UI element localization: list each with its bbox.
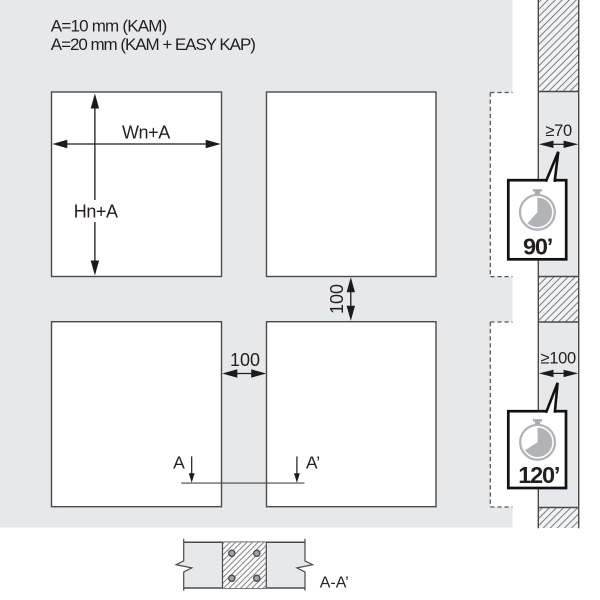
svg-text:≥70: ≥70	[545, 122, 572, 140]
svg-text:A’: A’	[306, 452, 320, 472]
svg-text:Wn+A: Wn+A	[122, 122, 170, 142]
svg-text:A=20 mm (KAM + EASY KAP): A=20 mm (KAM + EASY KAP)	[51, 35, 255, 54]
svg-text:≥100: ≥100	[541, 350, 577, 368]
svg-text:A=10 mm (KAM): A=10 mm (KAM)	[51, 16, 167, 35]
svg-text:100: 100	[230, 350, 260, 370]
svg-text:90’: 90’	[523, 233, 552, 259]
svg-text:Hn+A: Hn+A	[74, 201, 118, 221]
svg-text:120’: 120’	[518, 462, 559, 488]
svg-text:A: A	[173, 452, 185, 472]
svg-text:A-A’: A-A’	[320, 575, 349, 592]
svg-text:100: 100	[327, 284, 347, 314]
